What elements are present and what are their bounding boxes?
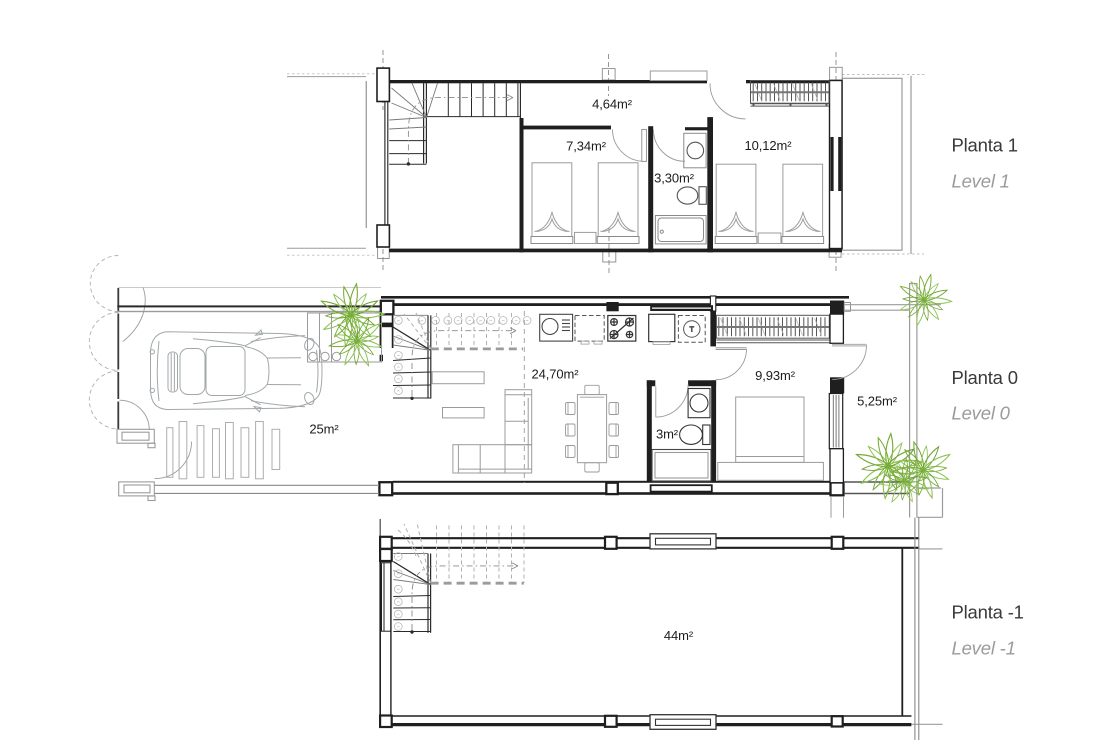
- svg-text:Planta 1: Planta 1: [952, 134, 1018, 155]
- svg-text:Level 1: Level 1: [952, 170, 1010, 191]
- svg-text:Planta 0: Planta 0: [952, 367, 1018, 388]
- svg-text:3,30m²: 3,30m²: [654, 171, 695, 186]
- svg-text:Planta -1: Planta -1: [952, 602, 1024, 623]
- svg-text:4,64m²: 4,64m²: [592, 97, 633, 112]
- svg-text:25m²: 25m²: [309, 422, 339, 437]
- svg-text:24,70m²: 24,70m²: [532, 367, 580, 382]
- svg-text:9,93m²: 9,93m²: [755, 368, 796, 383]
- svg-text:10,12m²: 10,12m²: [745, 138, 793, 153]
- svg-text:5,25m²: 5,25m²: [857, 394, 898, 409]
- svg-text:44m²: 44m²: [664, 628, 694, 643]
- svg-text:Level 0: Level 0: [952, 403, 1011, 424]
- svg-text:Level -1: Level -1: [952, 638, 1016, 659]
- svg-text:3m²: 3m²: [656, 427, 679, 442]
- svg-text:7,34m²: 7,34m²: [566, 139, 607, 154]
- svg-text:T: T: [690, 327, 695, 334]
